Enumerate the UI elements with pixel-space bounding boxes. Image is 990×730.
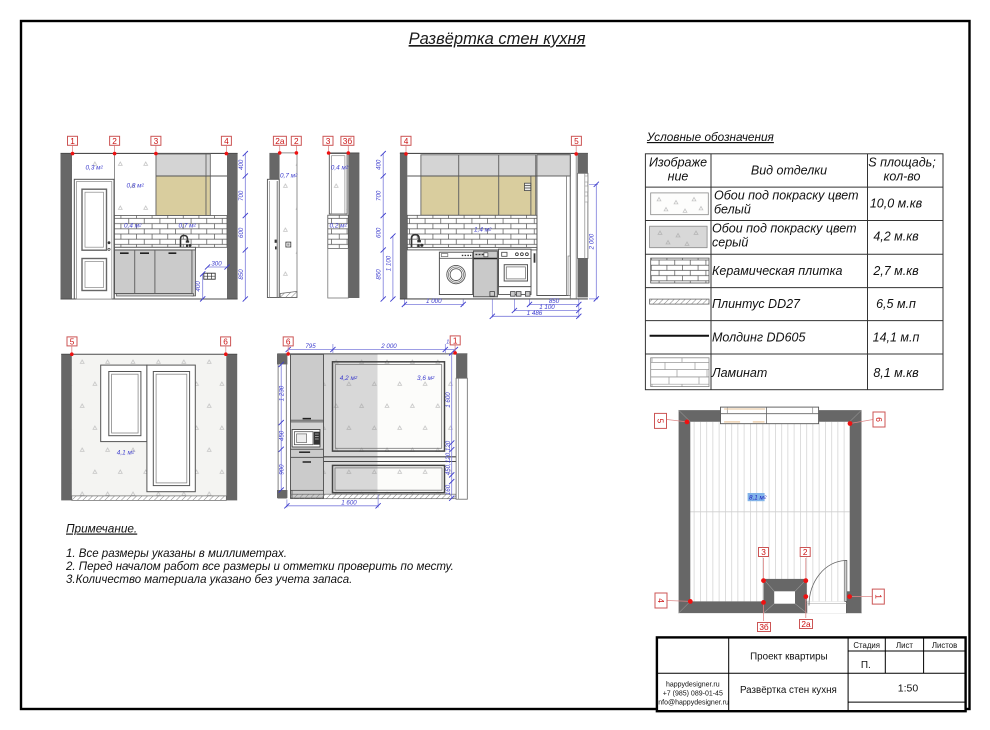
svg-text:2: 2 [112,136,117,146]
svg-text:1. Все размеры указаны в милли: 1. Все размеры указаны в миллиметрах. [66,548,287,560]
svg-text:600: 600 [376,227,383,238]
svg-text:Развёртка стен кухня: Развёртка стен кухня [740,685,837,696]
svg-text:2,7 м.кв: 2,7 м.кв [872,264,919,278]
svg-text:happydesigner.ru: happydesigner.ru [666,682,720,689]
svg-text:Изображе: Изображе [649,156,707,170]
svg-text:450: 450 [279,430,286,441]
svg-text:2 000: 2 000 [589,233,596,250]
svg-text:6: 6 [874,417,884,422]
svg-text:900: 900 [279,464,286,475]
svg-text:400: 400 [195,281,202,292]
svg-text:Лист: Лист [896,641,913,650]
svg-text:4,2 м.кв: 4,2 м.кв [873,230,919,244]
svg-text:3б: 3б [343,136,353,146]
svg-text:1 230: 1 230 [279,385,286,401]
svg-text:Обои под покраску цвет: Обои под покраску цвет [714,189,858,203]
svg-text:П.: П. [861,660,871,671]
svg-text:795: 795 [305,343,316,350]
svg-text:1 000: 1 000 [426,298,442,305]
svg-text:600: 600 [238,227,245,238]
svg-text:4: 4 [656,598,666,603]
svg-text:14,1 м.п: 14,1 м.п [873,330,920,344]
svg-text:3.Количество материала указано: 3.Количество материала указано без учета… [66,574,352,586]
svg-text:Проект квартиры: Проект квартиры [750,652,828,663]
svg-text:5: 5 [70,336,75,346]
svg-text:ние: ние [668,170,689,184]
svg-text:Плинтус DD27: Плинтус DD27 [712,297,801,311]
svg-text:Ламинат: Ламинат [711,366,767,380]
svg-text:Керамическая плитка: Керамическая плитка [712,264,842,278]
svg-text:S площадь;: S площадь; [868,156,936,170]
svg-text:6: 6 [223,336,228,346]
svg-text:120: 120 [445,440,452,451]
svg-text:2а: 2а [801,619,811,629]
svg-text:серый: серый [712,236,748,250]
svg-text:1: 1 [453,335,458,345]
svg-text:4: 4 [224,136,229,146]
svg-text:2: 2 [294,136,299,146]
svg-text:Примечание.: Примечание. [66,522,137,536]
svg-text:1: 1 [70,136,75,146]
svg-text:4: 4 [404,136,409,146]
svg-text:2 000: 2 000 [380,343,397,350]
svg-text:Развёртка стен кухня: Развёртка стен кухня [409,30,586,48]
svg-text:450,120: 450,120 [445,452,452,475]
svg-text:3: 3 [154,136,159,146]
svg-text:10,0 м.кв: 10,0 м.кв [870,197,923,211]
svg-text:Молдинг DD605: Молдинг DD605 [712,330,805,344]
svg-text:700: 700 [238,190,245,201]
svg-text:5: 5 [574,136,579,146]
svg-text:8,1 м.кв: 8,1 м.кв [873,366,919,380]
svg-text:400: 400 [376,159,383,170]
svg-text:300: 300 [211,260,222,267]
svg-text:3: 3 [761,547,766,557]
svg-text:info@happydesigner.ru: info@happydesigner.ru [657,700,729,707]
svg-text:Условные обозначения: Условные обозначения [646,130,775,144]
svg-text:1 600: 1 600 [445,392,452,408]
svg-text:Вид отделки: Вид отделки [751,164,827,178]
svg-text:3: 3 [326,136,331,146]
svg-text:Обои под покраску цвет: Обои под покраску цвет [712,222,856,236]
svg-text:1:50: 1:50 [898,683,919,695]
svg-text:белый: белый [714,203,751,217]
svg-text:2: 2 [803,547,808,557]
svg-text:2а: 2а [275,136,285,146]
svg-text:+7 (985) 089-01-45: +7 (985) 089-01-45 [663,691,723,698]
svg-text:Листов: Листов [932,641,957,650]
svg-text:1 486: 1 486 [527,310,543,317]
svg-text:1 600: 1 600 [341,499,357,506]
svg-text:850: 850 [376,269,383,280]
svg-text:3б: 3б [759,622,769,632]
svg-text:160: 160 [445,484,452,495]
svg-text:Стадия: Стадия [853,641,880,650]
svg-text:6: 6 [286,336,291,346]
svg-text:1 100: 1 100 [385,255,392,271]
svg-text:2. Перед началом работ все раз: 2. Перед началом работ все размеры и отм… [65,561,454,573]
svg-text:1: 1 [873,594,883,599]
svg-text:кол-во: кол-во [884,170,921,184]
svg-text:700: 700 [376,190,383,201]
svg-text:400: 400 [238,159,245,170]
svg-text:6,5 м.п: 6,5 м.п [876,297,916,311]
svg-text:850: 850 [238,269,245,280]
svg-text:5: 5 [656,419,666,424]
